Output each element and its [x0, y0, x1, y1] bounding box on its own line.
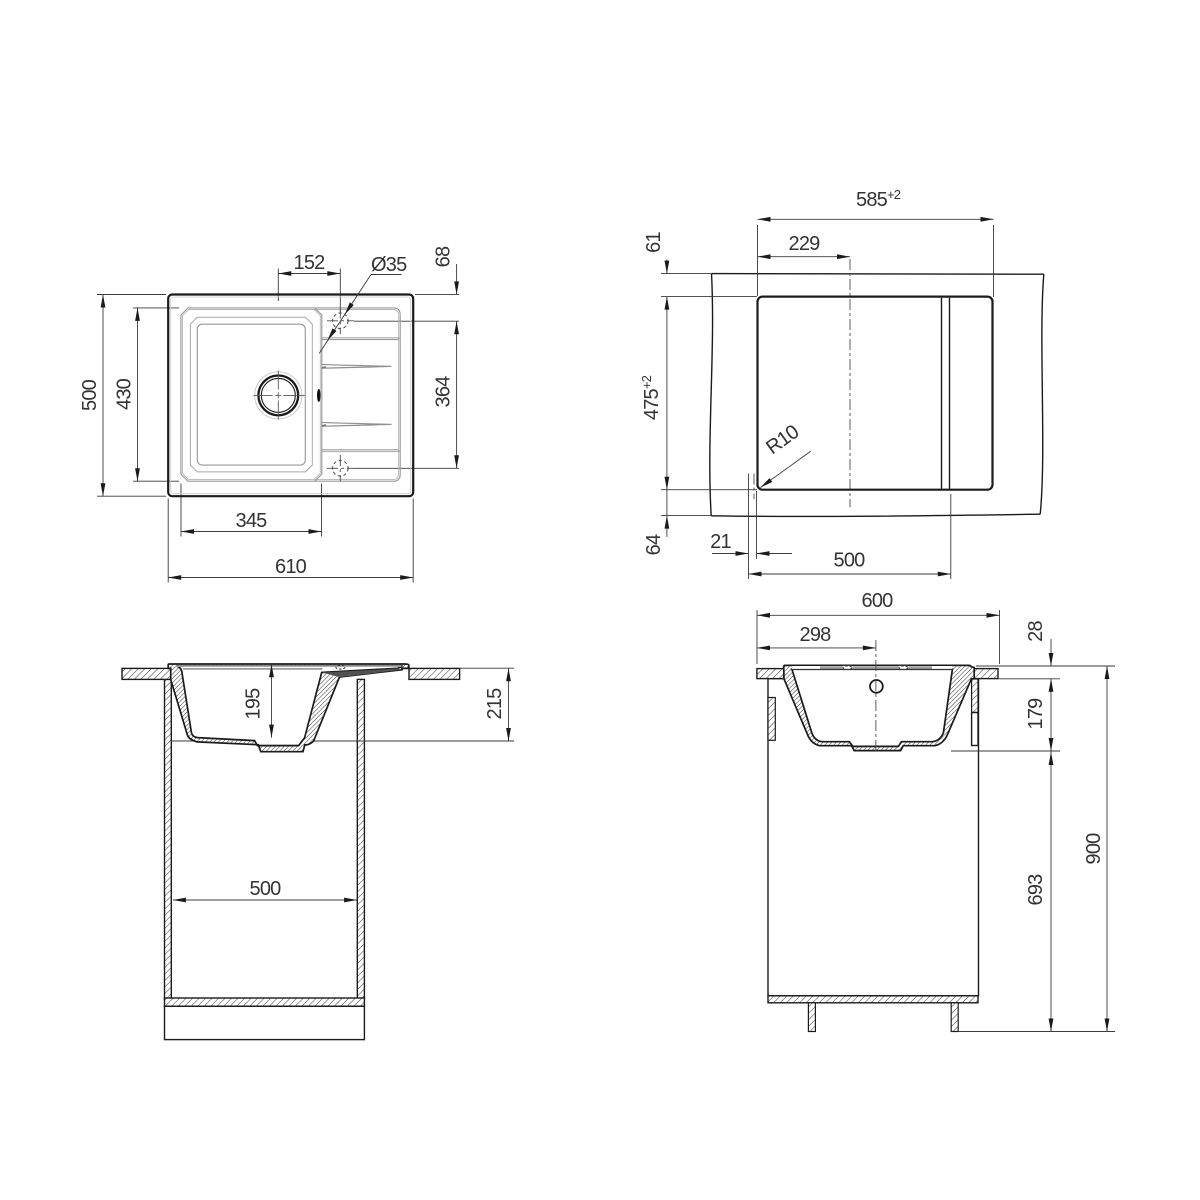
- svg-text:215: 215: [484, 688, 506, 720]
- svg-text:500: 500: [834, 550, 866, 572]
- svg-text:152: 152: [294, 252, 326, 274]
- svg-text:Ø35: Ø35: [371, 254, 407, 276]
- svg-text:345: 345: [236, 510, 268, 532]
- svg-text:179: 179: [1025, 698, 1047, 730]
- svg-text:298: 298: [800, 624, 832, 646]
- svg-text:229: 229: [789, 233, 821, 255]
- svg-text:610: 610: [275, 556, 307, 578]
- svg-text:600: 600: [862, 590, 894, 612]
- svg-text:693: 693: [1025, 874, 1047, 906]
- svg-text:195: 195: [243, 688, 265, 720]
- svg-text:364: 364: [433, 376, 455, 408]
- svg-text:430: 430: [114, 378, 136, 410]
- svg-text:500: 500: [79, 379, 101, 411]
- svg-text:68: 68: [433, 246, 455, 267]
- svg-text:61: 61: [643, 232, 665, 253]
- svg-text:500: 500: [250, 878, 282, 900]
- svg-text:64: 64: [643, 534, 665, 555]
- svg-text:21: 21: [710, 531, 731, 553]
- svg-text:28: 28: [1025, 621, 1047, 642]
- svg-text:900: 900: [1083, 833, 1105, 865]
